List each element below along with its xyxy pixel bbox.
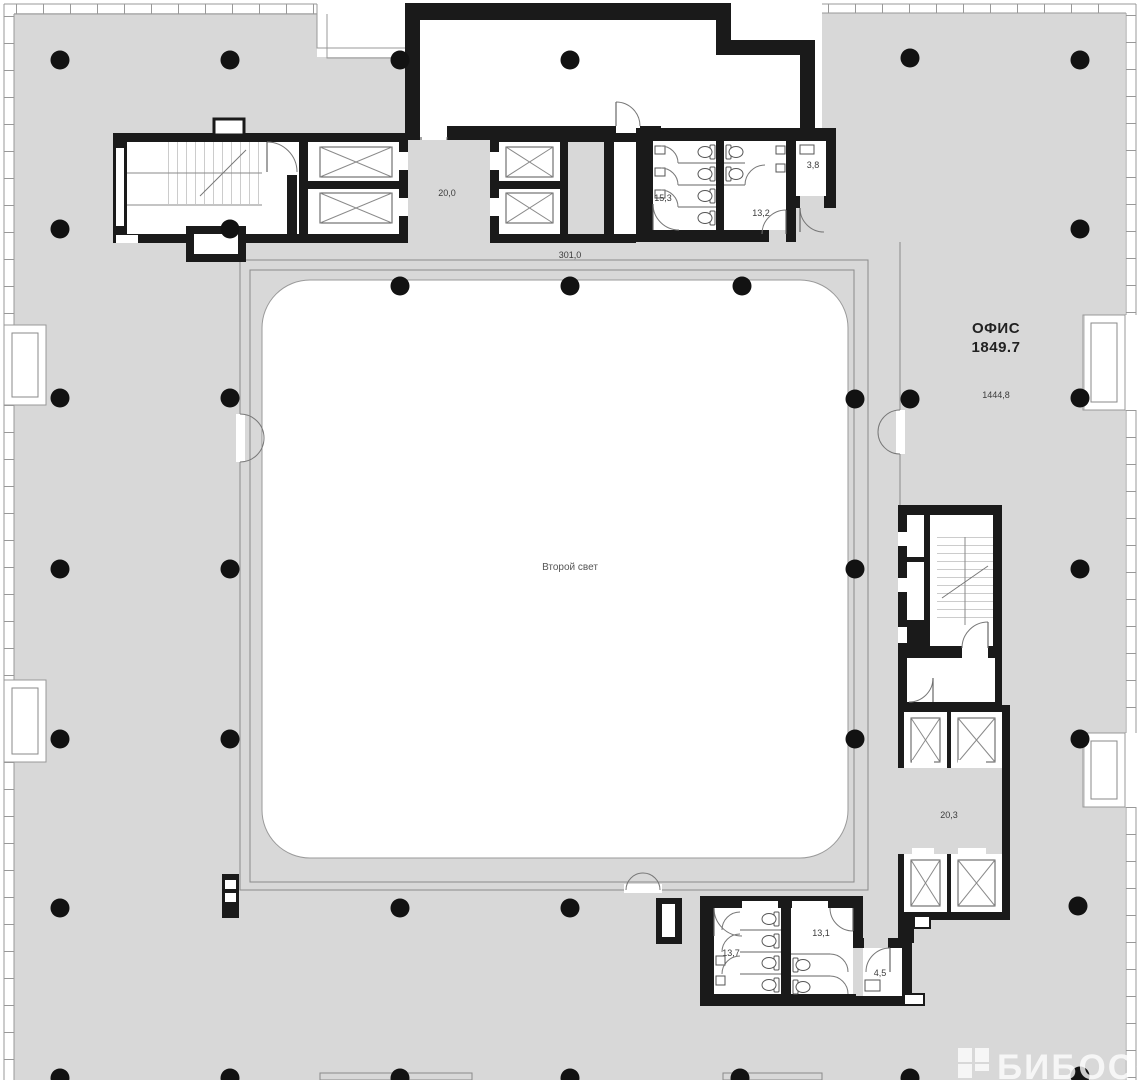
stairs-icon xyxy=(937,537,993,625)
room-label-wc-top-right: 13,2 xyxy=(752,208,770,218)
office-area-label: 1849.7 xyxy=(972,339,1021,356)
atrium-label: Второй свет xyxy=(542,562,598,573)
office-sub-area-label: 1444,8 xyxy=(982,390,1010,400)
room-label-wc-top-left: 15,3 xyxy=(654,193,672,203)
elevator-bank-top-right xyxy=(490,133,636,243)
room-label-lobby-right: 20,3 xyxy=(940,810,958,820)
watermark-text: БИБОСС xyxy=(997,1048,1139,1080)
elevator-bank-top-left xyxy=(299,133,408,243)
office-name-label: ОФИС xyxy=(972,320,1020,337)
room-label-wc-bottom-right: 13,1 xyxy=(812,928,830,938)
elevator-bank-right: 20,3 xyxy=(898,705,1010,943)
floor-plan: Второй свет xyxy=(0,0,1139,1080)
floor-plan-page: Второй свет xyxy=(0,0,1139,1080)
room-label-wc-bottom-left: 13,7 xyxy=(722,948,740,958)
atrium: Второй свет xyxy=(222,242,905,918)
stair-core-top-left xyxy=(113,119,308,262)
room-label-lobby-top: 20,0 xyxy=(438,188,456,198)
room-label-wc-top-small: 3,8 xyxy=(807,160,820,170)
stair-core-right xyxy=(898,505,1002,705)
elevator-lobby-top: 20,0 xyxy=(408,133,499,243)
corridor-area-label: 301,0 xyxy=(559,250,582,260)
room-label-wc-bottom-small: 4,5 xyxy=(874,968,887,978)
